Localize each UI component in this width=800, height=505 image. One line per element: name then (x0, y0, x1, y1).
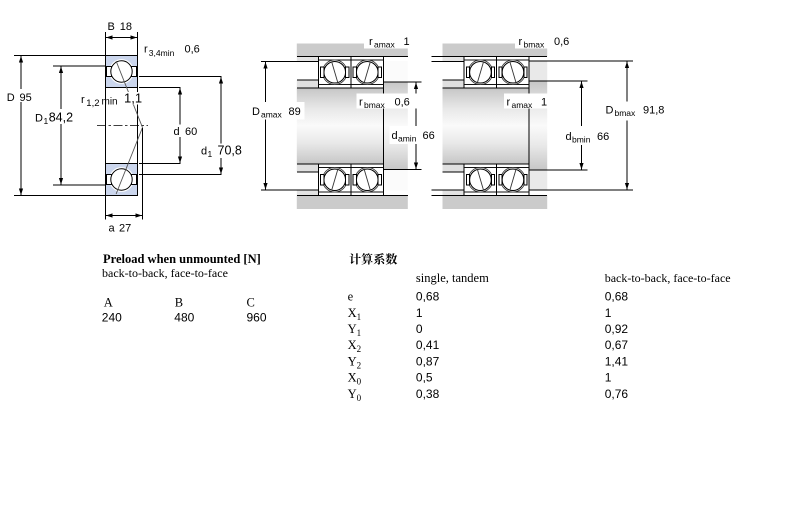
svg-text:r: r (144, 44, 148, 56)
svg-text:1: 1 (357, 328, 362, 338)
svg-text:1,1: 1,1 (124, 91, 142, 106)
svg-text:0,92: 0,92 (605, 322, 629, 336)
svg-text:bmax: bmax (524, 40, 546, 50)
svg-text:0: 0 (357, 377, 362, 387)
svg-text:2: 2 (357, 344, 362, 354)
svg-text:0,68: 0,68 (416, 290, 440, 304)
svg-text:1: 1 (541, 97, 547, 109)
svg-text:Y: Y (348, 387, 357, 401)
svg-text:0,6: 0,6 (395, 97, 410, 109)
svg-text:0,6: 0,6 (185, 44, 200, 56)
svg-text:0,41: 0,41 (416, 338, 440, 352)
svg-text:0: 0 (416, 322, 423, 336)
svg-text:D: D (35, 113, 43, 125)
svg-text:Preload when unmounted [N]: Preload when unmounted [N] (103, 252, 261, 266)
svg-text:89: 89 (289, 106, 301, 118)
svg-text:95: 95 (20, 92, 32, 104)
svg-text:0,68: 0,68 (605, 290, 629, 304)
svg-text:r: r (81, 94, 85, 106)
svg-text:amin: amin (398, 134, 417, 144)
svg-text:66: 66 (423, 130, 435, 142)
svg-text:0,38: 0,38 (416, 387, 440, 401)
svg-text:d: d (174, 126, 180, 138)
svg-text:0,87: 0,87 (416, 354, 440, 368)
svg-text:D: D (606, 105, 614, 117)
svg-text:240: 240 (102, 310, 122, 324)
svg-text:66: 66 (597, 131, 609, 143)
svg-text:X: X (348, 306, 357, 320)
svg-text:18: 18 (120, 21, 132, 33)
svg-text:1: 1 (416, 306, 423, 320)
svg-text:1: 1 (605, 306, 612, 320)
svg-text:C: C (247, 296, 255, 310)
svg-text:amax: amax (374, 40, 396, 50)
svg-text:r: r (369, 36, 373, 48)
svg-text:r: r (519, 36, 523, 48)
svg-text:B: B (108, 21, 115, 33)
svg-text:amax: amax (512, 100, 534, 110)
svg-text:bmax: bmax (364, 100, 386, 110)
svg-text:r: r (359, 97, 363, 109)
svg-text:amax: amax (261, 110, 283, 120)
svg-text:70,8: 70,8 (218, 144, 242, 158)
svg-text:D: D (7, 92, 15, 104)
svg-text:1: 1 (605, 371, 612, 385)
svg-text:0,5: 0,5 (416, 371, 433, 385)
svg-text:960: 960 (247, 310, 267, 324)
svg-text:a: a (109, 223, 116, 235)
svg-text:91,8: 91,8 (643, 105, 664, 117)
svg-text:min: min (102, 96, 118, 107)
svg-text:r: r (507, 97, 511, 109)
svg-text:0: 0 (357, 393, 362, 403)
svg-text:bmin: bmin (572, 135, 591, 145)
svg-text:back-to-back, face-to-face: back-to-back, face-to-face (102, 266, 228, 280)
svg-text:B: B (175, 296, 183, 310)
svg-text:Y: Y (348, 322, 357, 336)
svg-text:0,67: 0,67 (605, 338, 629, 352)
svg-text:X: X (348, 371, 357, 385)
svg-text:single, tandem: single, tandem (416, 271, 489, 285)
svg-text:d: d (566, 131, 572, 143)
svg-text:d: d (392, 130, 398, 142)
svg-text:e: e (348, 290, 354, 304)
svg-text:2: 2 (357, 360, 362, 370)
svg-text:1: 1 (208, 149, 213, 159)
svg-text:1,41: 1,41 (605, 354, 629, 368)
svg-text:bmax: bmax (615, 108, 637, 118)
svg-text:X: X (348, 338, 357, 352)
svg-text:D: D (252, 106, 260, 118)
svg-text:Y: Y (348, 354, 357, 368)
svg-text:1: 1 (404, 36, 410, 48)
svg-text:0,76: 0,76 (605, 387, 629, 401)
svg-text:back-to-back, face-to-face: back-to-back, face-to-face (605, 271, 731, 285)
svg-text:d: d (201, 146, 207, 158)
svg-text:84,2: 84,2 (49, 111, 73, 125)
svg-text:1: 1 (357, 312, 362, 322)
svg-text:0,6: 0,6 (554, 36, 569, 48)
svg-text:60: 60 (185, 126, 197, 138)
svg-text:480: 480 (174, 310, 194, 324)
svg-text:3,4min: 3,4min (149, 48, 175, 58)
svg-text:1,2: 1,2 (86, 98, 99, 109)
svg-text:27: 27 (119, 223, 131, 235)
svg-text:A: A (104, 296, 113, 310)
